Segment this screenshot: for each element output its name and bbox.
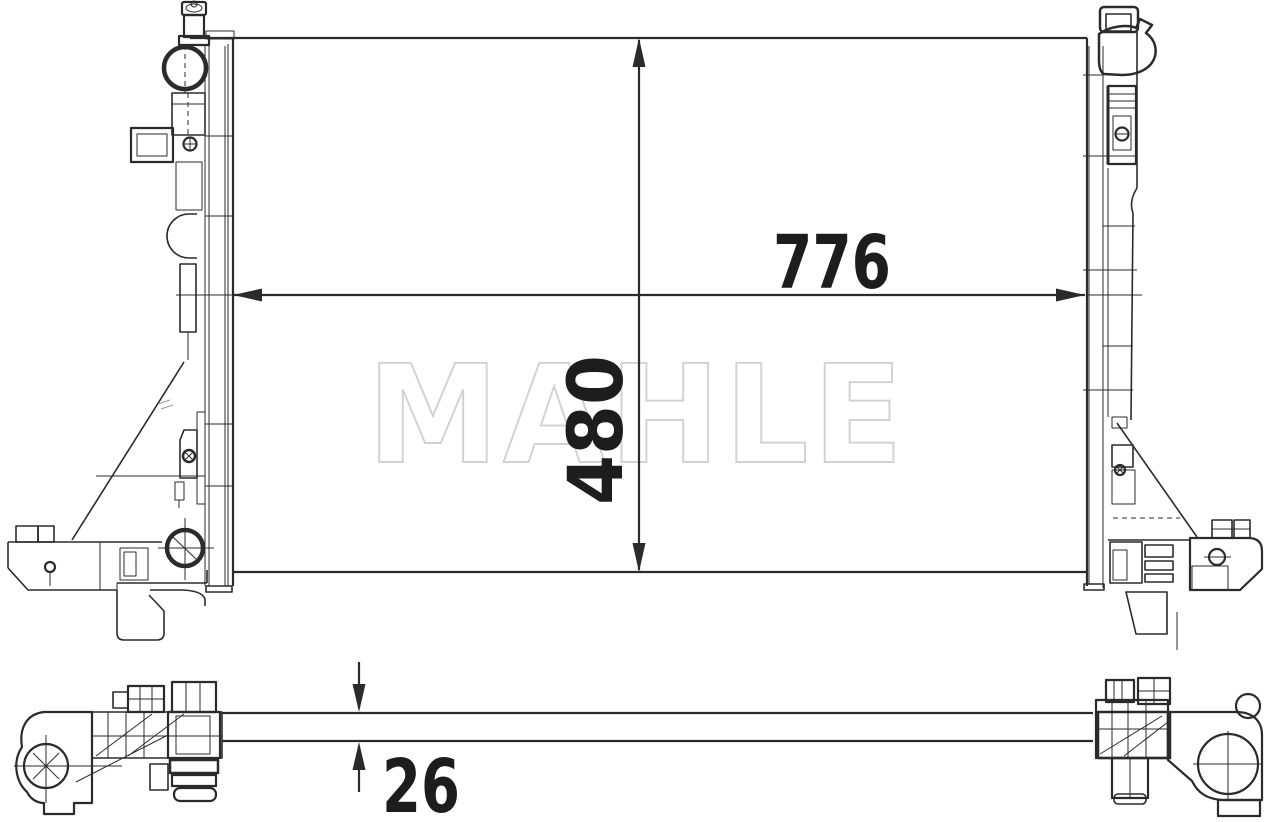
left-tank-bump — [167, 214, 197, 258]
radiator-technical-drawing: MAHLE — [0, 0, 1280, 822]
right-mid-bracket — [1112, 417, 1135, 504]
right-crosshair-port — [1193, 731, 1263, 799]
left-tank-gasket-strip — [205, 46, 233, 586]
radiator-bottom-view — [14, 662, 1263, 816]
arrowhead-up-icon — [633, 38, 646, 67]
inlet-port-circle — [164, 45, 206, 93]
right-bracket-plate — [1190, 538, 1262, 590]
right-tank-diagonal — [1117, 423, 1197, 537]
core-outline — [190, 38, 1104, 592]
arrowhead-right-icon — [1056, 289, 1085, 302]
depth-dimension-26 — [353, 662, 366, 792]
right-tank-gasket-strip — [1089, 46, 1103, 588]
arrowhead-left-icon — [233, 289, 262, 302]
filler-cap — [182, 1, 206, 15]
right-upper-bracket — [1108, 86, 1136, 164]
width-dimension-label: 776 — [773, 220, 891, 306]
bottom-view-right-bracket — [1096, 678, 1263, 816]
bolt-detail-upper-left — [183, 137, 197, 151]
depth-dimension-label: 26 — [382, 744, 460, 822]
right-top-cap — [1100, 7, 1138, 32]
arrowhead-down-small-icon — [353, 684, 366, 712]
right-foot — [1126, 592, 1167, 634]
side-connector — [131, 128, 173, 162]
radiator-technical-drawing-page: MAHLE — [0, 0, 1280, 822]
arrowhead-up-small-icon — [353, 742, 366, 770]
left-mid-bracket — [96, 412, 205, 508]
width-dimension-776 — [176, 289, 1142, 302]
left-crosshair-port — [14, 735, 122, 803]
outlet-port-circle — [158, 518, 214, 580]
filler-neck — [179, 15, 234, 45]
left-tank — [72, 1, 234, 540]
left-foot — [117, 590, 164, 640]
hose-port — [1099, 19, 1156, 75]
right-mounting-bracket — [1108, 520, 1262, 650]
left-mounting-bracket — [8, 518, 214, 640]
bracket-pin — [45, 562, 55, 572]
arrowhead-down-icon — [633, 543, 646, 572]
right-tank — [1083, 7, 1197, 537]
left-tank-diagonal — [72, 362, 184, 540]
height-dimension-label: 480 — [551, 355, 640, 505]
bottom-view-left-bracket — [14, 682, 222, 814]
